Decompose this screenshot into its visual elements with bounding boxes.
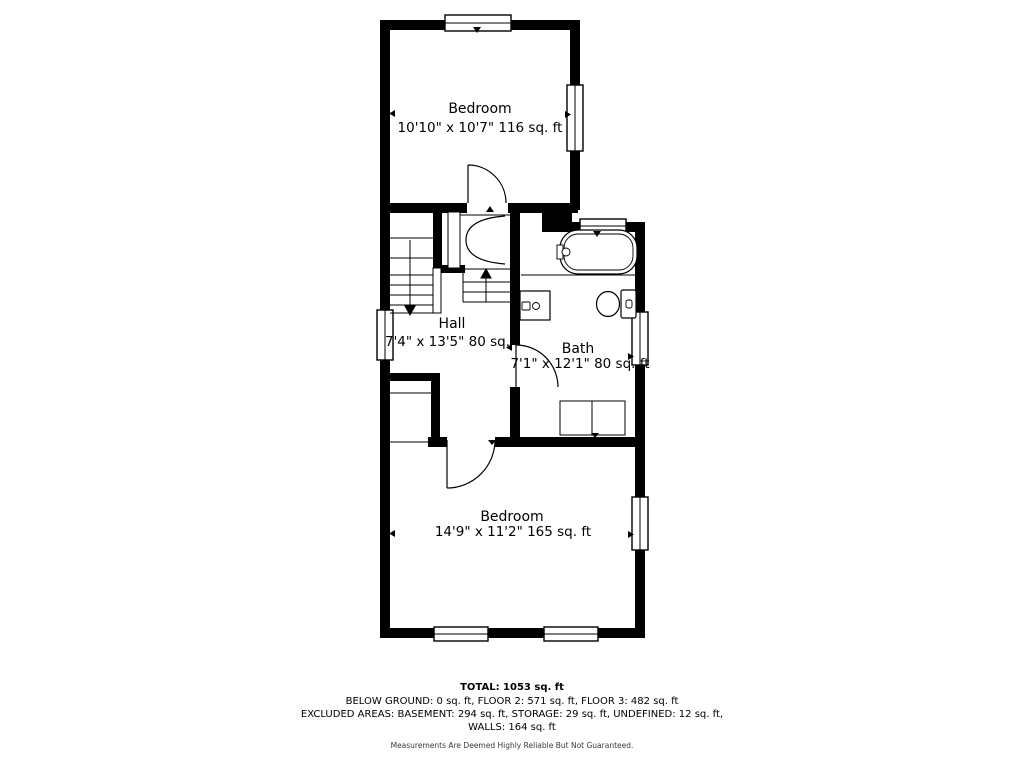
summary-walls: WALLS: 164 sq. ft xyxy=(0,721,1024,734)
window-bed2-right xyxy=(632,497,648,550)
summary-disclaimer: Measurements Are Deemed Highly Reliable … xyxy=(0,741,1024,750)
floor-plan-page: Bedroom 10'10" x 10'7" 116 sq. ft Hall 7… xyxy=(0,0,1024,768)
bed2-closet-detail xyxy=(388,393,431,442)
wall-top-right-seg xyxy=(508,20,580,30)
storage-box-right xyxy=(592,401,625,435)
door-bed2 xyxy=(447,440,495,488)
window-bed2-bottom-left xyxy=(434,627,488,641)
wall-bed2-closet-right xyxy=(431,373,440,437)
wall-right-lower xyxy=(635,550,645,638)
wall-bed1-right-upper xyxy=(570,20,580,88)
sink-vanity xyxy=(520,291,550,320)
storage-boxes xyxy=(560,401,625,435)
storage-box-left xyxy=(560,401,592,435)
room-label-bath: Bath xyxy=(538,341,618,357)
wall-bottom-c xyxy=(596,628,645,638)
wall-bed2-top-c xyxy=(495,437,645,447)
stairs-down-arrow-icon xyxy=(405,306,415,315)
bath-fixtures xyxy=(520,230,637,435)
summary-total: TOTAL: 1053 sq. ft xyxy=(0,681,1024,694)
wall-right-mid xyxy=(635,365,645,497)
room-dims-hall: 7'4" x 13'5" 80 sq. ft xyxy=(385,335,509,351)
wall-left-lower xyxy=(380,360,390,638)
window-bed1-right xyxy=(567,85,583,151)
closet-bifold-door xyxy=(448,212,510,268)
window-bed2-bottom-right xyxy=(544,627,598,641)
summary-excluded: EXCLUDED AREAS: BASEMENT: 294 sq. ft, ST… xyxy=(0,708,1024,721)
wall-bed1-right-lower xyxy=(570,148,580,210)
summary-floors: BELOW GROUND: 0 sq. ft, FLOOR 2: 571 sq.… xyxy=(0,695,1024,708)
wall-bottom-b xyxy=(488,628,546,638)
door-bed1 xyxy=(468,165,506,203)
bathtub xyxy=(521,230,637,275)
wall-bed2-top-a xyxy=(380,437,388,447)
wall-left-upper xyxy=(380,20,390,310)
stairs-up-arrow-icon xyxy=(481,269,491,278)
marker-bed1-door-icon xyxy=(486,206,494,212)
wall-stair-closet-divider xyxy=(433,213,442,268)
room-label-bedroom-top: Bedroom xyxy=(380,101,580,117)
wall-hall-bath-upper xyxy=(510,213,520,345)
wall-top-left-seg xyxy=(380,20,448,30)
room-label-hall: Hall xyxy=(412,316,492,332)
room-label-bedroom-bottom: Bedroom xyxy=(412,509,612,525)
wall-bed2-top-b xyxy=(428,437,447,447)
stairs-up-run xyxy=(463,269,510,302)
room-dims-bedroom-top: 10'10" x 10'7" 116 sq. ft xyxy=(380,121,580,137)
toilet xyxy=(597,290,637,318)
wall-bottom-a xyxy=(380,628,437,638)
wall-hall-bath-lower xyxy=(510,387,520,437)
room-dims-bath: 7'1" x 12'1" 80 sq. ft xyxy=(500,357,660,373)
room-dims-bedroom-bottom: 14'9" x 11'2" 165 sq. ft xyxy=(413,525,613,541)
